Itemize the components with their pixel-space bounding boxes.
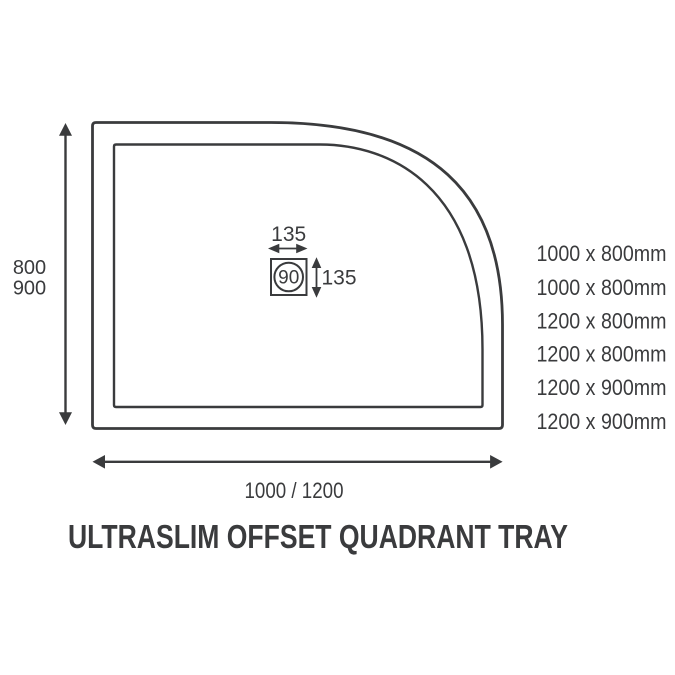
svg-text:1200 x 900mm: 1200 x 900mm xyxy=(537,375,667,400)
svg-text:1200 x 800mm: 1200 x 800mm xyxy=(537,342,667,367)
svg-text:1000 x 800mm: 1000 x 800mm xyxy=(537,241,667,266)
svg-text:1000 x 800mm: 1000 x 800mm xyxy=(537,275,667,300)
svg-text:1200 x 800mm: 1200 x 800mm xyxy=(537,309,667,334)
svg-text:135: 135 xyxy=(271,223,306,246)
svg-text:900: 900 xyxy=(13,278,46,300)
svg-text:135: 135 xyxy=(322,267,357,290)
svg-text:1000 / 1200: 1000 / 1200 xyxy=(245,478,344,503)
svg-text:90: 90 xyxy=(278,268,299,289)
svg-text:1200 x 900mm: 1200 x 900mm xyxy=(537,409,667,434)
svg-text:800: 800 xyxy=(13,257,46,279)
svg-text:ULTRASLIM OFFSET QUADRANT TRAY: ULTRASLIM OFFSET QUADRANT TRAY xyxy=(68,518,568,555)
